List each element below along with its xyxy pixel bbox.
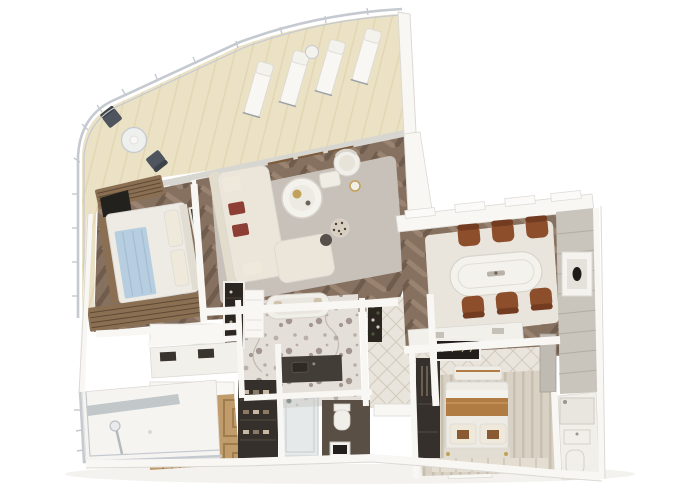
bistro-table-plate [130,136,138,144]
second-bathroom [558,392,600,480]
sideboard-dish [492,328,504,334]
bath2-vanity [564,430,590,444]
bath2-faucet [576,433,579,436]
bed2-bench [454,366,502,380]
floorplan-canvas [0,0,680,486]
wall-bedroom2-bath2 [554,392,558,478]
bed2-pillow [480,424,506,444]
counter-sink [160,352,176,362]
oval-art [573,267,582,281]
linen-shelf [244,290,264,338]
ottoman [319,170,341,188]
balcony-deck [82,380,220,462]
oval-art-niche [562,252,592,296]
table-decor [306,201,311,206]
shower-head [287,399,292,404]
paneled-wall [556,208,598,394]
counter-sink [198,349,214,359]
gold-tray [293,190,302,199]
lounger-side-table [306,46,319,59]
glass-shower [282,394,318,456]
master-bed [98,202,201,305]
bed2-fold [446,390,508,398]
dining-table [448,250,543,298]
gold-side-table [350,181,360,191]
reading-light [446,452,450,456]
bath2-shower-head [563,400,567,404]
wall-dressing-shower [278,344,282,464]
toilet [334,404,350,430]
suite-floorplan-render [0,0,680,486]
bath2-toilet [566,450,584,474]
bed2-tan-band [446,398,508,416]
reading-light [504,452,508,456]
coffee-table-top [289,185,315,211]
shower-wc [282,394,370,462]
side-stool [320,234,332,246]
vanity-sink [292,362,308,373]
bed2-pillow [450,424,476,444]
leopard-pouf [331,219,349,237]
wc-framed-art [330,442,350,457]
wall-bath-west [238,300,242,398]
deck-drain [148,430,152,434]
vanity [280,355,343,383]
side-balcony [74,380,222,466]
